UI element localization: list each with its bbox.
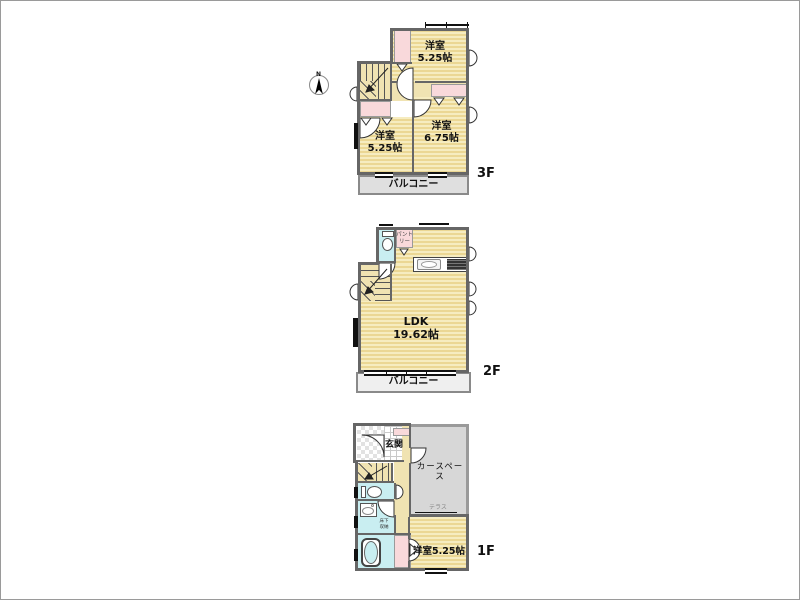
terrace-edge-line bbox=[415, 512, 457, 513]
wall-segment bbox=[376, 227, 379, 264]
wall-segment bbox=[408, 517, 410, 539]
room-size: 6.75帖 bbox=[415, 133, 468, 145]
room-size: 5.25帖 bbox=[358, 143, 412, 155]
wall-segment bbox=[408, 561, 410, 568]
window-marker bbox=[353, 318, 358, 347]
wall-segment bbox=[394, 483, 396, 499]
wall-segment bbox=[357, 61, 360, 175]
wall-segment bbox=[466, 514, 469, 571]
bedroom-sw-label: 洋室 5.25帖 bbox=[358, 131, 412, 155]
wall-segment bbox=[412, 99, 414, 172]
window-marker bbox=[375, 172, 393, 178]
bedroom-ne-label: 洋室 5.25帖 bbox=[409, 41, 461, 65]
window-tick bbox=[446, 22, 447, 28]
wall-segment bbox=[466, 28, 469, 175]
wall-segment bbox=[392, 28, 469, 31]
wall-segment bbox=[357, 172, 469, 175]
wall-segment bbox=[353, 423, 411, 426]
bedroom-1f-label: 洋室5.25帖 bbox=[411, 546, 467, 557]
wall-segment bbox=[466, 227, 469, 373]
entrance-label: 玄関 bbox=[382, 440, 406, 451]
room-size: 5.25帖 bbox=[409, 53, 461, 65]
carspace-wall bbox=[411, 424, 469, 427]
wall-segment bbox=[392, 81, 397, 83]
wall-segment bbox=[357, 99, 392, 101]
ldk-label: LDK 19.62帖 bbox=[386, 315, 446, 341]
window-marker bbox=[379, 224, 393, 226]
floor-2f-label: 2F bbox=[483, 364, 501, 379]
balcony-2f-label: バルコニー bbox=[356, 376, 471, 388]
wall-segment bbox=[390, 28, 393, 64]
window-tick bbox=[467, 22, 468, 28]
terrace-label: テラス bbox=[423, 504, 453, 511]
room-name: LDK bbox=[386, 315, 446, 328]
floor-1f-label: 1F bbox=[477, 544, 495, 559]
floor-3f-label: 3F bbox=[477, 166, 495, 181]
wall-segment bbox=[390, 264, 392, 301]
floorplan-canvas: 洋室 5.25帖 洋室 5.25帖 洋室 6.75帖 バルコニー 3F N パン… bbox=[0, 0, 800, 600]
wall-segment bbox=[379, 261, 396, 263]
window-marker bbox=[428, 172, 447, 178]
compass-north-label: N bbox=[316, 71, 321, 78]
balcony-3f-label: バルコニー bbox=[358, 179, 469, 191]
wall-segment bbox=[391, 463, 393, 483]
wall-segment bbox=[358, 262, 361, 373]
wall-segment bbox=[409, 426, 411, 448]
window-marker bbox=[425, 24, 469, 26]
wall-segment bbox=[415, 81, 469, 83]
wall-segment bbox=[358, 481, 394, 483]
wall-segment bbox=[357, 460, 404, 462]
underfloor-storage-label: 床下収納 bbox=[378, 519, 390, 531]
room-name: 洋室 bbox=[358, 131, 412, 143]
window-marker bbox=[425, 568, 447, 574]
room-name: 洋室 bbox=[415, 121, 468, 133]
window-marker bbox=[419, 223, 449, 225]
plan-symbols-overlay bbox=[1, 1, 800, 600]
window-tick bbox=[425, 22, 426, 28]
wall-segment bbox=[358, 499, 394, 501]
pantry-label: パントリー bbox=[395, 232, 414, 245]
wall-segment bbox=[376, 227, 469, 230]
window-marker bbox=[354, 516, 358, 528]
wall-segment bbox=[358, 533, 411, 535]
wall-segment bbox=[409, 514, 469, 517]
room-name: 洋室 bbox=[409, 41, 461, 53]
wall-segment bbox=[355, 568, 469, 571]
wall-segment bbox=[357, 61, 392, 64]
room-size: 19.62帖 bbox=[386, 328, 446, 341]
window-marker bbox=[354, 549, 358, 561]
wall-segment bbox=[394, 515, 396, 535]
wall-segment bbox=[409, 463, 411, 514]
wall-segment bbox=[358, 262, 379, 265]
bedroom-se-label: 洋室 6.75帖 bbox=[415, 121, 468, 145]
wall-segment bbox=[353, 423, 356, 463]
window-marker bbox=[354, 487, 358, 498]
carspace-label: カースペース bbox=[413, 462, 467, 482]
